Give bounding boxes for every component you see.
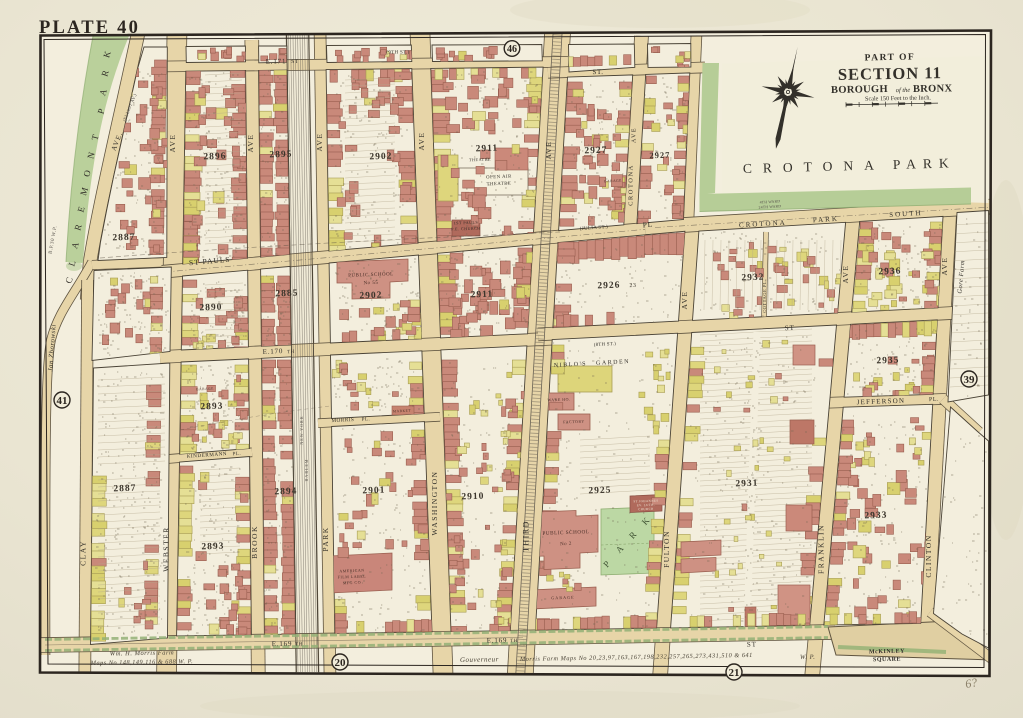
svg-text:2896: 2896 [203, 152, 226, 163]
svg-text:CLINTON: CLINTON [924, 534, 933, 577]
svg-text:2933: 2933 [864, 511, 887, 522]
svg-text:39: 39 [964, 374, 976, 386]
svg-text:FULTON: FULTON [662, 530, 671, 568]
svg-text:PL.: PL. [929, 397, 939, 403]
svg-text:Wm. H. Morris Farm: Wm. H. Morris Farm [110, 649, 175, 657]
svg-text:CLAY: CLAY [79, 540, 88, 566]
svg-text:TH: TH [287, 350, 295, 355]
svg-text:2887: 2887 [112, 233, 135, 244]
svg-text:PL.: PL. [362, 417, 371, 422]
svg-text:BRONX: BRONX [913, 83, 953, 95]
svg-text:THEATRE: THEATRE [469, 157, 491, 163]
svg-text:AVE: AVE [417, 132, 426, 151]
svg-text:PL: PL [642, 220, 653, 230]
svg-text:23: 23 [629, 283, 636, 289]
svg-text:AMERICAN: AMERICAN [339, 568, 365, 574]
svg-text:OPEN AIR: OPEN AIR [486, 175, 512, 181]
svg-text:THEATRE: THEATRE [486, 182, 511, 188]
svg-text:(9TH ST.): (9TH ST.) [386, 50, 409, 55]
svg-text:CHURCH: CHURCH [638, 507, 654, 512]
svg-text:6?: 6? [964, 675, 978, 691]
svg-text:20: 20 [335, 657, 347, 669]
svg-text:AVE: AVE [841, 265, 850, 284]
svg-text:of the: of the [896, 87, 911, 94]
svg-text:FRANKLIN: FRANKLIN [817, 524, 826, 574]
svg-text:P.E. CHURCH: P.E. CHURCH [451, 225, 481, 231]
svg-text:BOROUGH: BOROUGH [831, 84, 888, 96]
svg-text:PARK: PARK [893, 155, 956, 172]
svg-text:MORRIS: MORRIS [331, 417, 354, 424]
svg-text:AVE: AVE [632, 127, 638, 143]
svg-text:2910: 2910 [461, 492, 484, 503]
svg-text:TH: TH [295, 642, 303, 647]
svg-text:2895: 2895 [269, 150, 292, 161]
svg-text:PART OF: PART OF [865, 53, 916, 64]
svg-text:ST: ST [747, 640, 757, 648]
svg-text:2911: 2911 [476, 144, 499, 155]
svg-text:2893: 2893 [201, 542, 224, 553]
svg-text:2885: 2885 [275, 289, 298, 300]
svg-text:AVE: AVE [544, 141, 553, 160]
svg-text:2936: 2936 [878, 267, 901, 278]
svg-text:2894: 2894 [274, 487, 297, 498]
svg-text:21: 21 [729, 667, 740, 679]
svg-text:AVE: AVE [246, 134, 255, 153]
svg-text:2926: 2926 [597, 281, 620, 292]
svg-text:ST: ST [785, 324, 796, 333]
svg-text:THIRD: THIRD [521, 520, 530, 552]
svg-text:46: 46 [507, 44, 517, 55]
svg-text:E.170: E.170 [262, 347, 283, 356]
svg-text:GARAGE: GARAGE [551, 595, 575, 601]
svg-text:PARK: PARK [813, 215, 839, 225]
svg-text:CROTONA: CROTONA [628, 164, 635, 206]
svg-text:SECTION 11: SECTION 11 [838, 63, 942, 84]
svg-text:2911: 2911 [471, 290, 494, 301]
svg-text:NEW YORK: NEW YORK [299, 415, 304, 444]
svg-text:E.169: E.169 [272, 640, 293, 648]
svg-text:JEFFERSON: JEFFERSON [857, 397, 906, 407]
svg-text:E.169: E.169 [487, 636, 508, 644]
svg-text:FILM LABEL: FILM LABEL [338, 574, 367, 580]
svg-text:MFG CO: MFG CO [343, 580, 361, 586]
svg-text:2902: 2902 [369, 152, 392, 163]
svg-text:2927: 2927 [584, 146, 607, 157]
svg-text:ST: ST [291, 59, 299, 65]
svg-text:No 55: No 55 [363, 281, 378, 287]
svg-text:2927: 2927 [649, 150, 670, 161]
svg-text:AVE: AVE [940, 257, 949, 276]
svg-text:FACTORY: FACTORY [563, 419, 585, 425]
svg-text:2931: 2931 [735, 479, 758, 490]
svg-text:2935: 2935 [876, 356, 899, 367]
svg-text:SQUARE: SQUARE [873, 657, 901, 663]
svg-text:PLATE 40: PLATE 40 [39, 18, 140, 38]
svg-text:2901: 2901 [362, 486, 385, 497]
svg-text:BROOK: BROOK [250, 525, 259, 559]
svg-text:1ST PAULS: 1ST PAULS [454, 220, 479, 226]
svg-text:PL.: PL. [233, 452, 242, 458]
svg-text:Gouverneur: Gouverneur [460, 655, 499, 664]
svg-text:2902: 2902 [359, 291, 382, 302]
svg-text:AVE: AVE [680, 291, 689, 310]
svg-text:HARLEM: HARLEM [304, 459, 309, 482]
svg-text:2925: 2925 [588, 486, 611, 497]
svg-text:PARK: PARK [321, 526, 330, 551]
svg-text:No 2: No 2 [560, 542, 572, 547]
svg-text:WASHINGTON: WASHINGTON [430, 471, 439, 536]
svg-text:2893: 2893 [200, 402, 223, 413]
svg-text:ST.: ST. [592, 68, 603, 76]
svg-text:W. P.: W. P. [800, 654, 815, 661]
svg-text:WEBSTER: WEBSTER [162, 526, 171, 572]
svg-text:TH: TH [510, 639, 518, 644]
svg-text:E.171: E.171 [266, 57, 287, 65]
svg-text:2890: 2890 [199, 303, 222, 314]
svg-text:2887: 2887 [113, 484, 136, 495]
svg-text:AVE: AVE [168, 134, 177, 153]
svg-text:AVE: AVE [315, 133, 324, 152]
svg-text:McKINLEY: McKINLEY [869, 649, 905, 656]
svg-text:WARE HO.: WARE HO. [547, 397, 570, 403]
svg-text:41: 41 [57, 395, 68, 407]
svg-text:Scale 150 Feet to the Inch.: Scale 150 Feet to the Inch. [865, 94, 932, 102]
svg-text:COTTAGE PL.: COTTAGE PL. [762, 279, 767, 313]
